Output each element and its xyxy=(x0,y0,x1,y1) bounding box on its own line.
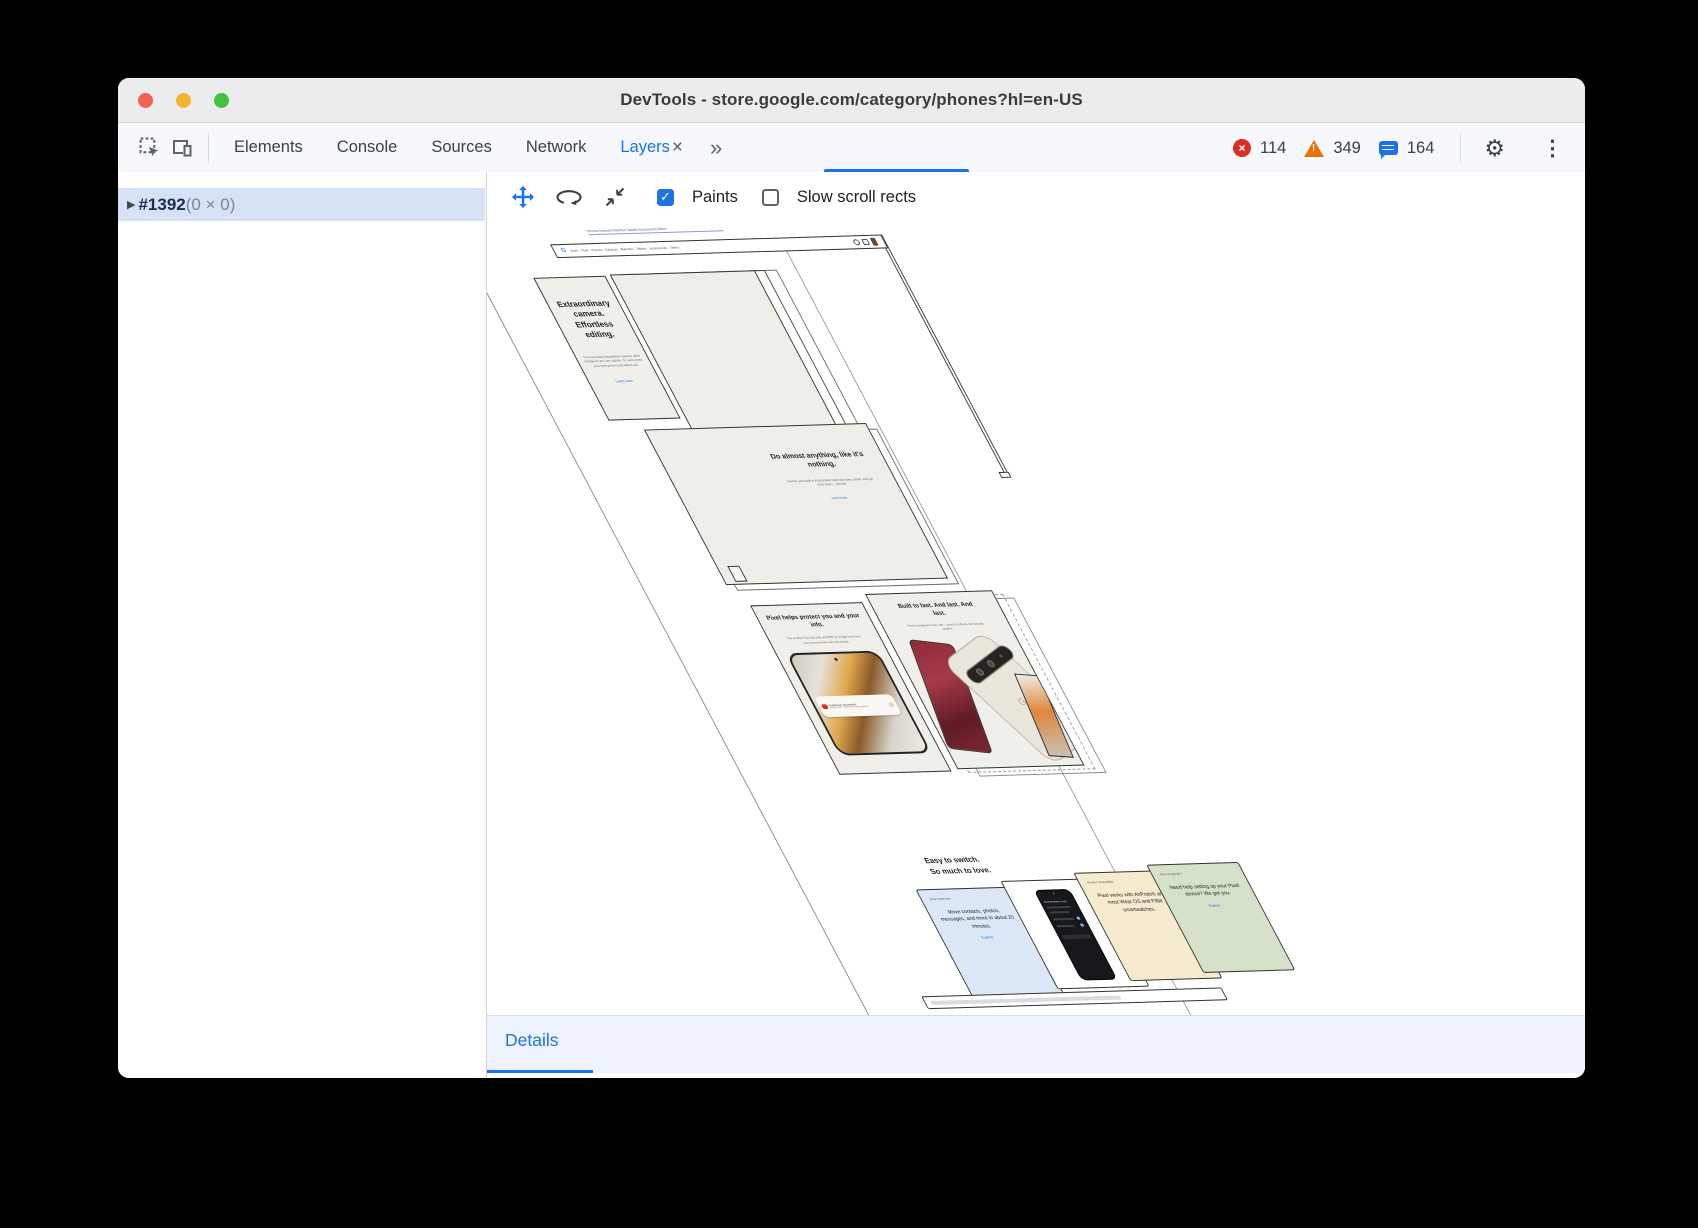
checkmark-icon: ✓ xyxy=(660,189,671,205)
alert-icon xyxy=(820,704,828,710)
close-window-button[interactable] xyxy=(138,93,153,108)
switch-heading-layer[interactable]: Easy to switch. So much to love. xyxy=(922,853,1053,877)
settings-gear-icon[interactable]: ⚙ xyxy=(1478,135,1511,162)
layers-panel-toolbar: ✓ Paints Slow scroll rects xyxy=(487,172,1585,223)
devtools-toolbar: Elements Console Sources Network Layers … xyxy=(118,123,1585,173)
layers-3d-scene: Phones Earbuds Watches Tablets Accessori… xyxy=(487,222,1585,1015)
layer-edge-hook xyxy=(998,472,1011,478)
phone-camera-dot xyxy=(833,658,838,661)
title-bar: DevTools - store.google.com/category/pho… xyxy=(118,78,1585,123)
almost-anything-layer[interactable]: Do almost anything, like it's nothing. G… xyxy=(644,423,948,585)
kebab-menu-icon[interactable]: ⋮ xyxy=(1520,136,1571,161)
phone-camera-dot xyxy=(1052,892,1055,894)
carousel-scrollbar-layer[interactable] xyxy=(921,987,1228,1009)
search-icon xyxy=(852,239,861,245)
almost-body: Gemini, your built-in AI assistant, help… xyxy=(773,476,890,488)
details-strip: Details xyxy=(487,1015,1585,1073)
tab-sources-label: Sources xyxy=(431,138,492,157)
tab-details[interactable]: Details xyxy=(505,1030,559,1051)
tab-network-label: Network xyxy=(526,138,587,157)
almost-link[interactable]: Learn more xyxy=(782,494,896,501)
zoom-window-button[interactable] xyxy=(214,93,229,108)
device-toolbar-icon[interactable] xyxy=(166,131,200,165)
paints-checkbox[interactable]: ✓ xyxy=(657,189,674,206)
switch-card-compat-label: Product compatibility xyxy=(1086,878,1162,884)
tab-elements[interactable]: Elements xyxy=(217,123,320,173)
issues-icon[interactable] xyxy=(1379,141,1398,155)
inspect-element-icon[interactable] xyxy=(132,131,166,165)
tab-network[interactable]: Network xyxy=(509,123,604,173)
tab-layers[interactable]: Layers × xyxy=(603,123,700,173)
layer-edge-double xyxy=(878,235,1009,475)
camera-bar xyxy=(963,642,1017,685)
google-logo: G xyxy=(560,248,568,254)
warning-count[interactable]: 349 xyxy=(1333,139,1361,158)
close-tab-icon[interactable]: × xyxy=(672,138,683,157)
slow-scroll-rects-checkbox[interactable] xyxy=(762,189,779,206)
blue-checkbox-dot xyxy=(1080,924,1085,927)
layers-3d-canvas[interactable]: Phones Earbuds Watches Tablets Accessori… xyxy=(487,222,1585,1015)
switch-card-transfer-body: Move contacts, photos, messages, and mor… xyxy=(935,908,1020,932)
hero-heading: Extraordinary camera. Effortless editing… xyxy=(552,299,632,342)
built-body: Pixel is designed to last, with 7 years … xyxy=(889,621,1004,633)
layer-size: (0 × 0) xyxy=(186,195,236,215)
avatar xyxy=(870,238,879,246)
error-count[interactable]: 114 xyxy=(1260,139,1286,158)
switch-card-help-link[interactable]: Explore xyxy=(1176,902,1252,908)
tab-layers-label: Layers xyxy=(620,138,670,157)
details-active-underline xyxy=(487,1070,593,1074)
built-heading: Built to last. And last. And last. xyxy=(878,600,997,619)
reset-view-icon[interactable] xyxy=(597,179,633,215)
tab-elements-label: Elements xyxy=(234,138,303,157)
toolbar-separator xyxy=(208,133,209,163)
protect-body: The certified Titan M2 chip and VPN by G… xyxy=(775,634,876,645)
switch-phone-title: Choose what to copy xyxy=(1043,900,1073,904)
layers-tree-sidebar: ▶ #1392 (0 × 0) xyxy=(118,172,487,1078)
skip-links-layer[interactable]: Phones Earbuds Watches Tablets Accessori… xyxy=(586,225,724,235)
scrollbar-thumb[interactable] xyxy=(930,995,1122,1004)
disclosure-triangle-icon[interactable]: ▶ xyxy=(127,198,135,211)
store-navbar-layer[interactable]: G Store Pixel Phones Earbuds Watches Tab… xyxy=(550,235,888,259)
switch-card-transfer-label: Easy Switch tool xyxy=(929,895,1005,901)
switch-card-help-label: Here to help 24/7 xyxy=(1159,870,1235,876)
paints-label: Paints xyxy=(692,188,738,207)
layer-tree-row[interactable]: ▶ #1392 (0 × 0) xyxy=(118,188,485,221)
cart-icon xyxy=(861,239,870,244)
switch-card-transfer-link[interactable]: Explore xyxy=(949,934,1025,940)
switch-card-help-body: Need help setting up your Pixel device? … xyxy=(1166,883,1248,899)
slow-scroll-rects-label: Slow scroll rects xyxy=(797,188,916,207)
more-tabs-icon[interactable]: » xyxy=(700,135,732,161)
tab-console[interactable]: Console xyxy=(320,123,415,173)
tab-sources[interactable]: Sources xyxy=(414,123,509,173)
alert-line2: Likely scam · caller not in your contact… xyxy=(830,705,890,709)
rotate-mode-icon[interactable] xyxy=(551,179,587,215)
warning-icon[interactable] xyxy=(1304,140,1324,157)
pan-mode-icon[interactable] xyxy=(505,179,541,215)
devtools-content: ▶ #1392 (0 × 0) xyxy=(118,172,1585,1078)
devtools-window: DevTools - store.google.com/category/pho… xyxy=(118,78,1585,1078)
almost-heading: Do almost anything, like it's nothing. xyxy=(759,450,881,472)
issues-count[interactable]: 164 xyxy=(1407,139,1435,158)
phone-alert-toast: Suspicious call detected Likely scam · c… xyxy=(813,694,902,717)
toolbar-status-cluster: × 114 349 164 ⚙ ⋮ xyxy=(1233,123,1571,173)
toolbar-separator-right xyxy=(1460,133,1461,163)
hero-link[interactable]: Learn more xyxy=(595,379,655,385)
window-title: DevTools - store.google.com/category/pho… xyxy=(620,90,1083,110)
traffic-lights xyxy=(118,78,229,122)
tab-console-label: Console xyxy=(337,138,398,157)
layer-id: #1392 xyxy=(138,195,185,215)
navbar-links: Store Pixel Phones Earbuds Watches Table… xyxy=(569,246,680,253)
error-icon[interactable]: × xyxy=(1233,139,1251,157)
layers-3d-panel: ✓ Paints Slow scroll rects Phones Earbud… xyxy=(487,172,1585,1078)
blue-checkbox-dot xyxy=(1076,917,1081,920)
protect-heading: Pixel helps protect you and your info. xyxy=(763,612,867,631)
hero-body: The best-rated smartphone camera. With G… xyxy=(581,353,646,368)
minimize-window-button[interactable] xyxy=(176,93,191,108)
